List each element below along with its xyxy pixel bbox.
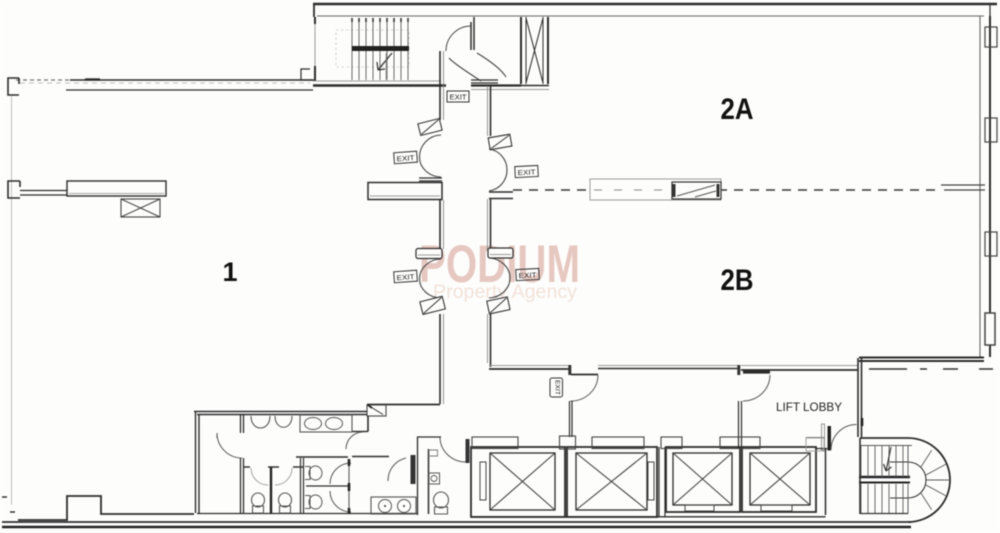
svg-text:2A: 2A [721,93,754,126]
svg-text:EXIT: EXIT [518,272,537,280]
svg-text:EXIT: EXIT [396,155,415,163]
svg-text:EXIT: EXIT [517,169,536,177]
svg-text:EXIT: EXIT [554,380,561,395]
svg-text:EXIT: EXIT [450,95,468,102]
svg-text:LIFT LOBBY: LIFT LOBBY [776,402,842,414]
svg-text:1: 1 [222,257,237,287]
svg-text:2B: 2B [721,264,754,297]
svg-text:EXIT: EXIT [396,274,415,282]
